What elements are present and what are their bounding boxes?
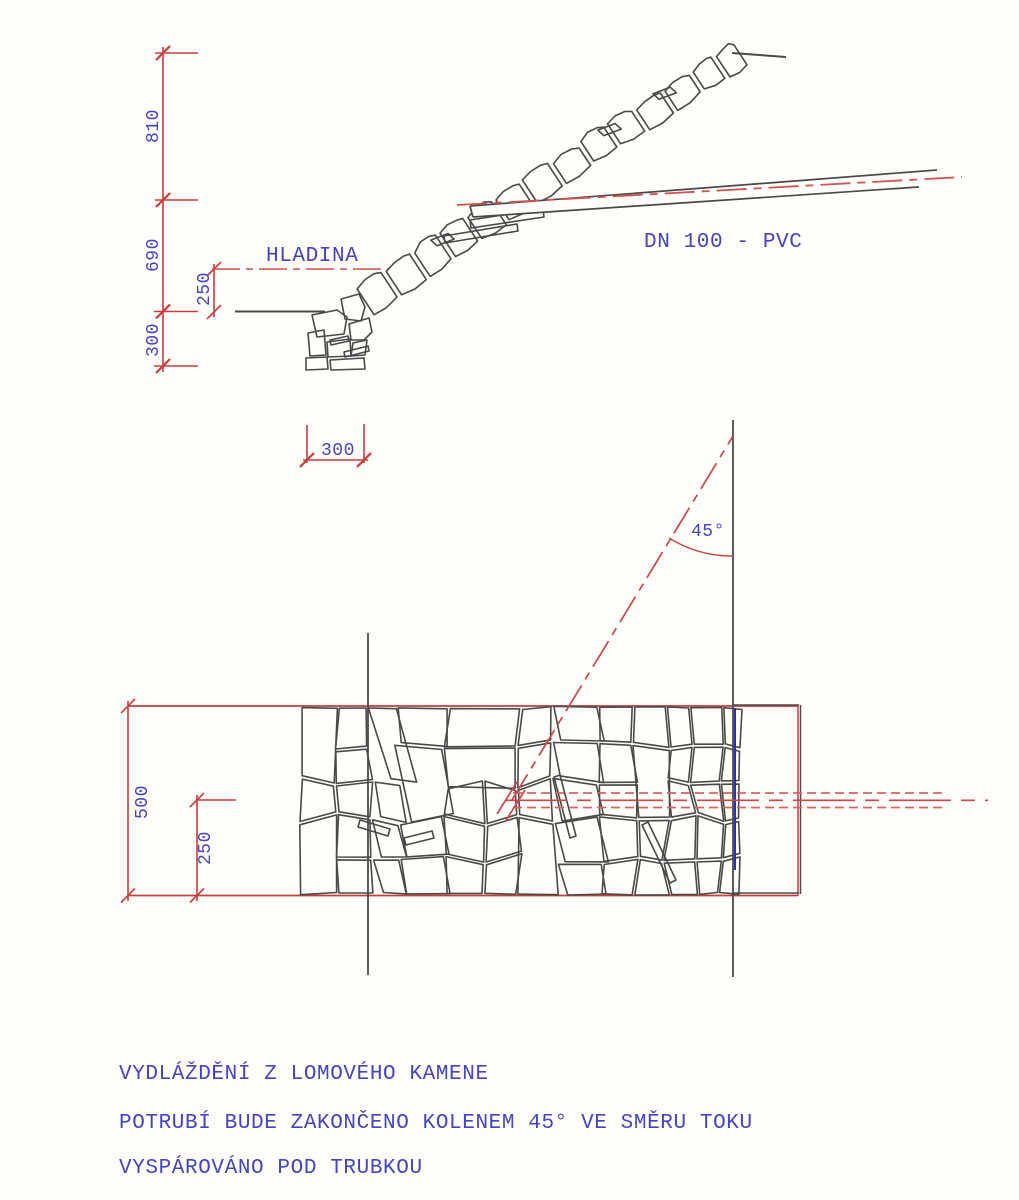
svg-text:250: 250 (195, 272, 215, 306)
svg-text:HLADINA: HLADINA (266, 245, 358, 268)
svg-text:DN 100 - PVC: DN 100 - PVC (644, 231, 802, 254)
svg-text:250: 250 (196, 831, 216, 865)
svg-text:690: 690 (144, 238, 164, 272)
svg-text:500: 500 (133, 785, 153, 819)
svg-text:45°: 45° (691, 522, 725, 542)
svg-text:POTRUBÍ BUDE ZAKONČENO KOLENEM: POTRUBÍ BUDE ZAKONČENO KOLENEM 45° VE SM… (119, 1111, 753, 1135)
svg-text:810: 810 (144, 109, 164, 143)
svg-text:VYDLÁŽDĚNÍ Z LOMOVÉHO KAMENE: VYDLÁŽDĚNÍ Z LOMOVÉHO KAMENE (119, 1062, 489, 1086)
svg-text:VYSPÁROVÁNO POD TRUBKOU: VYSPÁROVÁNO POD TRUBKOU (119, 1156, 423, 1180)
svg-text:300: 300 (144, 323, 164, 357)
svg-text:300: 300 (321, 441, 355, 461)
